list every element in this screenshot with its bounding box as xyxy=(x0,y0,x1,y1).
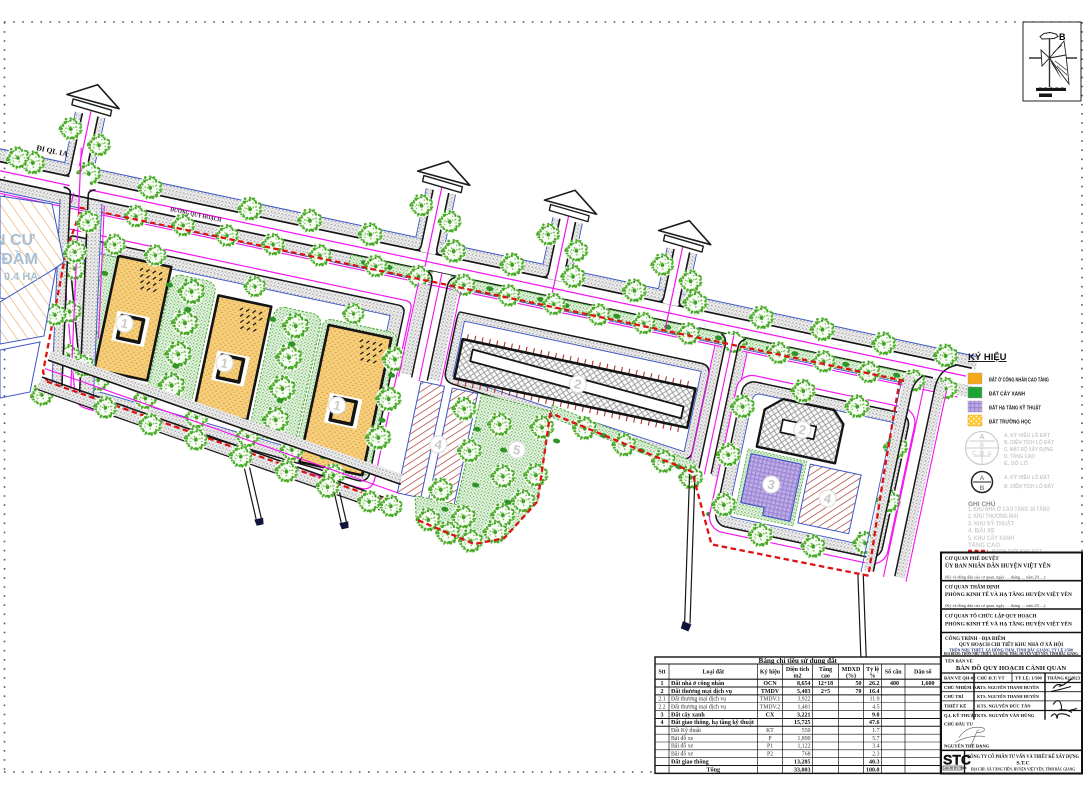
svg-text:1,481: 1,481 xyxy=(797,705,810,711)
svg-text:1: 1 xyxy=(661,681,664,687)
svg-text:KTS. NGUYỄN ĐỨC TÂN: KTS. NGUYỄN ĐỨC TÂN xyxy=(977,704,1031,709)
svg-text:ĐẤT Ở CÔNG NHÂN CAO TẦNG: ĐẤT Ở CÔNG NHÂN CAO TẦNG xyxy=(989,376,1049,384)
svg-text:3,922: 3,922 xyxy=(797,697,810,703)
svg-text:N CƯ: N CƯ xyxy=(0,232,36,249)
svg-text:Đất thương mại dịch vụ: Đất thương mại dịch vụ xyxy=(671,696,726,703)
svg-text:CX: CX xyxy=(766,712,775,718)
svg-text:MDXD: MDXD xyxy=(842,667,861,673)
svg-text:TỶ LỆ: 1/500: TỶ LỆ: 1/500 xyxy=(1015,676,1043,681)
svg-text:7 ĐẦM: 7 ĐẦM xyxy=(0,249,38,268)
svg-text:13,285: 13,285 xyxy=(794,759,811,765)
svg-text:550: 550 xyxy=(802,728,811,734)
svg-text:D. TẦNG CAO: D. TẦNG CAO xyxy=(1004,453,1036,460)
svg-text:Đất cây xanh: Đất cây xanh xyxy=(671,711,705,718)
svg-text:KTS. NGUYỄN THANH HUYỀN: KTS. NGUYỄN THANH HUYỀN xyxy=(977,694,1040,699)
svg-text:C: C xyxy=(972,451,976,457)
svg-text:E: E xyxy=(988,451,992,457)
svg-text:9.8: 9.8 xyxy=(872,712,880,718)
svg-text:Đất giao thông: Đất giao thông xyxy=(671,758,709,765)
svg-text:CÔNG TRÌNH - ĐỊA ĐIỂM: CÔNG TRÌNH - ĐỊA ĐIỂM xyxy=(945,636,1006,642)
svg-text:E. SỐ LÔ: E. SỐ LÔ xyxy=(1004,459,1029,467)
svg-text:400: 400 xyxy=(890,681,899,687)
svg-text:47.6: 47.6 xyxy=(869,720,880,726)
svg-text:D: D xyxy=(980,451,984,457)
svg-text:4: 4 xyxy=(661,720,664,726)
svg-text:TMDV.2: TMDV.2 xyxy=(760,705,781,711)
svg-text:Đất thương mại dịch vụ: Đất thương mại dịch vụ xyxy=(671,688,733,695)
svg-text:KTS. NGUYỄN VĂN HÙNG: KTS. NGUYỄN VĂN HÙNG xyxy=(977,713,1035,718)
svg-text:Loại đất: Loại đất xyxy=(702,669,724,676)
svg-text:3. KHU KỸ THUẬT: 3. KHU KỸ THUẬT xyxy=(968,520,1014,527)
svg-text:TMDV: TMDV xyxy=(761,689,780,695)
svg-text:TÊN BẢN VẼ: TÊN BẢN VẼ xyxy=(945,659,973,664)
svg-text:B. DIỆN TÍCH LÔ ĐẤT: B. DIỆN TÍCH LÔ ĐẤT xyxy=(1004,438,1054,446)
svg-text:Stt: Stt xyxy=(658,670,665,676)
svg-text:CHỦ Đ.T: VT: CHỦ Đ.T: VT xyxy=(977,676,1005,681)
svg-text:CHỦ NHIỆM Đ.A: CHỦ NHIỆM Đ.A xyxy=(944,685,981,690)
svg-text:A: A xyxy=(980,475,985,482)
svg-text:TẦNG CAO: TẦNG CAO xyxy=(968,542,1000,549)
svg-text:11.9: 11.9 xyxy=(870,697,880,703)
svg-text:CƠ QUAN TỔ CHỨC LẬP QUY HOẠCH: CƠ QUAN TỔ CHỨC LẬP QUY HOẠCH xyxy=(945,614,1037,620)
svg-text:Tổng: Tổng xyxy=(706,766,721,773)
svg-text:ĐỊA ĐIỂM: THÔN NHƯ THIẾT, XÃ H: ĐỊA ĐIỂM: THÔN NHƯ THIẾT, XÃ HỒNG THÁI, … xyxy=(944,650,1078,656)
svg-text:4. BÃI XE: 4. BÃI XE xyxy=(968,528,995,535)
svg-text:m2: m2 xyxy=(794,673,802,679)
svg-text:ĐẤT TRƯỜNG HỌC: ĐẤT TRƯỜNG HỌC xyxy=(989,418,1032,426)
svg-text:3,221: 3,221 xyxy=(797,712,811,718)
svg-text:ĐẤT CÂY XANH: ĐẤT CÂY XANH xyxy=(989,391,1025,398)
svg-text:P: P xyxy=(768,736,771,742)
svg-text:ĐẤT HẠ TẦNG KỸ THUẬT: ĐẤT HẠ TẦNG KỸ THUẬT xyxy=(989,405,1041,412)
svg-text:BẢN ĐỒ QUY HOẠCH CẢNH QUAN: BẢN ĐỒ QUY HOẠCH CẢNH QUAN xyxy=(956,664,1066,672)
svg-text:Diện tích: Diện tích xyxy=(786,667,810,673)
svg-text:B: B xyxy=(1059,32,1066,42)
svg-text:ĐỊA CHỈ: XÃ TĂNG TIẾN, HUYỆN V: ĐỊA CHỈ: XÃ TĂNG TIẾN, HUYỆN VIỆT YÊN, T… xyxy=(971,766,1075,772)
svg-text:3: 3 xyxy=(661,712,664,718)
svg-text:KÝ HIỆU: KÝ HIỆU xyxy=(968,351,1007,363)
svg-text:1,600: 1,600 xyxy=(921,681,935,687)
svg-text:C. MẬT ĐỘ XÂY DỰNG: C. MẬT ĐỘ XÂY DỰNG xyxy=(1004,445,1053,453)
svg-text:ỦY BAN NHÂN DÂN HUYỆN VIỆT YÊN: ỦY BAN NHÂN DÂN HUYỆN VIỆT YÊN xyxy=(945,562,1051,570)
svg-text:B: B xyxy=(980,443,984,449)
svg-text:50: 50 xyxy=(856,681,862,687)
svg-text:Bãi đỗ xe: Bãi đỗ xe xyxy=(671,743,694,750)
svg-text:15,725: 15,725 xyxy=(794,720,811,726)
svg-text:26.2: 26.2 xyxy=(869,681,880,687)
svg-text:Số căn: Số căn xyxy=(885,669,903,676)
svg-text:KT: KT xyxy=(766,728,774,734)
svg-text:BẢN VẼ QH-02: BẢN VẼ QH-02 xyxy=(944,676,976,681)
svg-text:Q.L KỸ THUẬT: Q.L KỸ THUẬT xyxy=(944,713,977,718)
svg-text:B: B xyxy=(980,485,985,492)
svg-text:OCN: OCN xyxy=(763,681,777,687)
svg-text:70: 70 xyxy=(856,689,862,695)
svg-text:8,654: 8,654 xyxy=(797,681,811,687)
svg-text:2.2: 2.2 xyxy=(658,705,665,711)
svg-text:Dân số: Dân số xyxy=(914,669,933,676)
svg-text:KTS. NGUYỄN THANH HUYỀN: KTS. NGUYỄN THANH HUYỀN xyxy=(977,685,1040,690)
svg-text:Tầng: Tầng xyxy=(819,666,832,673)
svg-text:2.3: 2.3 xyxy=(872,752,879,758)
svg-text:CÔNG TY CỔ PHẦN TƯ VẤN VÀ THIẾ: CÔNG TY CỔ PHẦN TƯ VẤN VÀ THIẾT KẾ XÂY D… xyxy=(967,754,1079,760)
svg-text:THIẾT KẾ: THIẾT KẾ xyxy=(944,704,966,709)
svg-text:Đất Kỹ thuật: Đất Kỹ thuật xyxy=(671,727,701,734)
svg-text:PHÒNG KINH TẾ VÀ HẠ TẦNG HUYỆN: PHÒNG KINH TẾ VÀ HẠ TẦNG HUYỆN VIỆT YÊN xyxy=(945,620,1072,628)
svg-text:2: 2 xyxy=(661,689,664,695)
svg-text:1,890: 1,890 xyxy=(797,736,810,742)
svg-text:12÷18: 12÷18 xyxy=(818,681,833,687)
svg-text:ARCHITECTURE: ARCHITECTURE xyxy=(944,767,967,770)
svg-text:Ký hiệu: Ký hiệu xyxy=(760,670,781,676)
svg-text:%: % xyxy=(870,673,876,679)
svg-text:1,122: 1,122 xyxy=(797,744,810,750)
svg-text:100.0: 100.0 xyxy=(866,767,880,773)
svg-text:CƠ QUAN PHÊ DUYỆT: CƠ QUAN PHÊ DUYỆT xyxy=(945,556,999,562)
svg-text:5,403: 5,403 xyxy=(797,689,811,695)
svg-text:5. KHU CÂY XANH: 5. KHU CÂY XANH xyxy=(968,535,1014,542)
svg-text:CHỦ TRÌ: CHỦ TRÌ xyxy=(944,694,964,699)
svg-text:2÷5: 2÷5 xyxy=(821,689,830,695)
svg-text:4.5: 4.5 xyxy=(872,705,879,711)
svg-text:Đất giao thông, hạ tầng kỹ thu: Đất giao thông, hạ tầng kỹ thuật xyxy=(671,719,754,726)
svg-text:NGUYỄN THẾ ĐẠNG: NGUYỄN THẾ ĐẠNG xyxy=(944,744,990,749)
svg-text:768: 768 xyxy=(802,752,811,758)
svg-text:16.4: 16.4 xyxy=(869,689,880,695)
svg-text:A. KÝ HIỆU LÔ ĐẤT: A. KÝ HIỆU LÔ ĐẤT xyxy=(1004,473,1051,481)
svg-text:3.4: 3.4 xyxy=(872,744,879,750)
svg-text:1. KHU NHÀ Ở CAO TẦNG 18 TẦNG: 1. KHU NHÀ Ở CAO TẦNG 18 TẦNG xyxy=(968,506,1050,513)
svg-text:A. KÝ HIỆU LÔ ĐẤT: A. KÝ HIỆU LÔ ĐẤT xyxy=(1004,431,1051,439)
svg-text:CHỦ ĐẦU TƯ: CHỦ ĐẦU TƯ xyxy=(944,722,973,727)
svg-text:0.4 HA: 0.4 HA xyxy=(4,271,38,283)
svg-text:cao: cao xyxy=(821,673,830,679)
svg-text:Đất nhà ở công nhân: Đất nhà ở công nhân xyxy=(671,680,725,687)
svg-text:Bãi đỗ xe: Bãi đỗ xe xyxy=(671,751,694,758)
svg-text:33,003: 33,003 xyxy=(794,767,811,773)
svg-text:PHÒNG KINH TẾ VÀ HẠ TẦNG HUYỆN: PHÒNG KINH TẾ VÀ HẠ TẦNG HUYỆN VIỆT YÊN xyxy=(945,590,1072,598)
svg-text:P1: P1 xyxy=(767,744,773,750)
svg-text:5.7: 5.7 xyxy=(872,736,879,742)
svg-text:TMDV.1: TMDV.1 xyxy=(760,697,781,703)
svg-text:CƠ QUAN THẨM ĐỊNH: CƠ QUAN THẨM ĐỊNH xyxy=(945,585,1000,591)
svg-text:2.1: 2.1 xyxy=(658,697,665,703)
svg-text:2. KHU THƯƠNG MẠI: 2. KHU THƯƠNG MẠI xyxy=(968,514,1018,520)
svg-text:Tỷ lệ: Tỷ lệ xyxy=(866,667,879,673)
svg-text:P2: P2 xyxy=(767,752,773,758)
svg-text:Đất thương mại dịch vụ: Đất thương mại dịch vụ xyxy=(671,704,726,711)
svg-text:40.3: 40.3 xyxy=(869,759,880,765)
svg-text:(%): (%) xyxy=(846,672,856,679)
svg-text:B. DIỆN TÍCH LÔ ĐẤT: B. DIỆN TÍCH LÔ ĐẤT xyxy=(1004,482,1054,490)
svg-text:A: A xyxy=(979,434,984,441)
svg-text:1.7: 1.7 xyxy=(872,728,879,734)
svg-text:THÁNG 02/2023: THÁNG 02/2023 xyxy=(1047,676,1081,681)
svg-text:Bãi đỗ xe: Bãi đỗ xe xyxy=(671,735,694,742)
